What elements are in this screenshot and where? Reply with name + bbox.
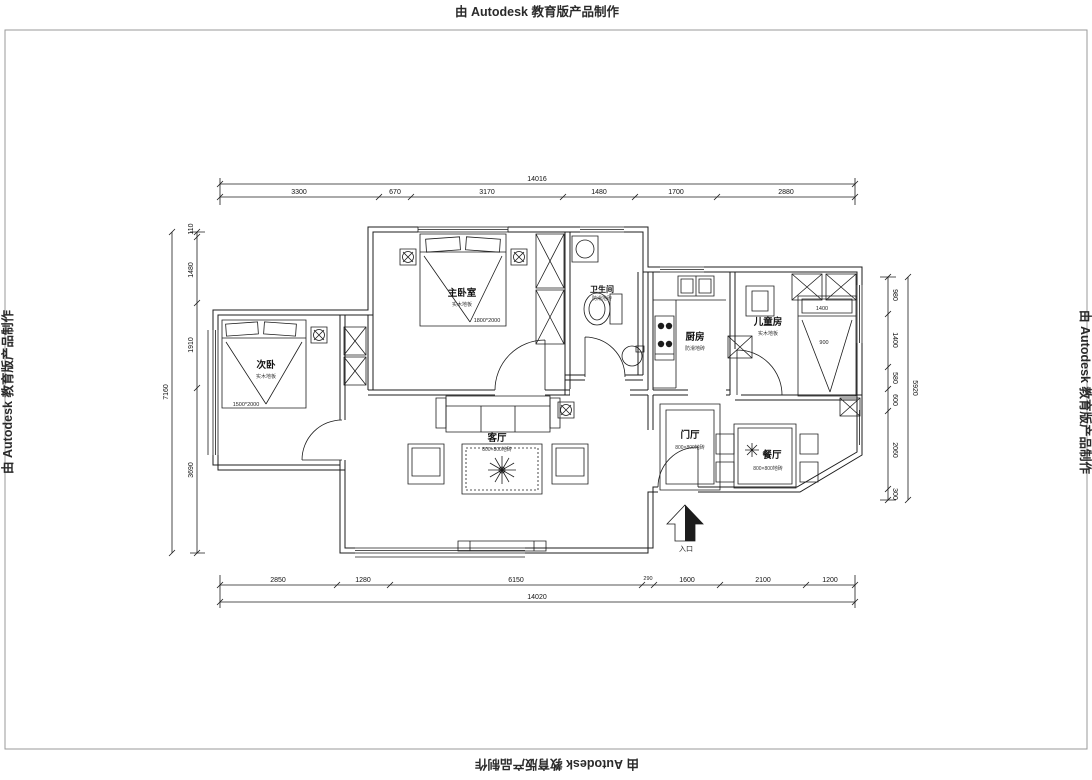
dim: 670 <box>389 189 401 196</box>
floorplan-drawing: 由 Autodesk 教育版产品制作 由 Autodesk 教育版产品制作 由 … <box>0 0 1092 780</box>
dim-left-total: 7160 <box>163 384 170 400</box>
kids-bed-depth: 900 <box>819 340 828 346</box>
second-bed-size: 1500*2000 <box>233 402 260 408</box>
door-openings <box>339 349 741 493</box>
dim-left: 110 1480 1910 3690 7160 <box>163 223 205 556</box>
dining-centerpiece <box>745 443 759 457</box>
dim: 1600 <box>679 577 695 584</box>
label-hall: 门厅 <box>680 429 700 441</box>
dim: 1400 <box>891 332 898 348</box>
dim: 1700 <box>668 189 684 196</box>
washer <box>572 236 598 262</box>
note-bathroom: 防滑地砖 <box>592 295 612 302</box>
watermark-bottom: 由 Autodesk 教育版产品制作 <box>475 757 639 772</box>
dim-top-total: 14016 <box>527 176 547 183</box>
note-hall: 800×800地砖 <box>675 444 705 451</box>
watermark-top: 由 Autodesk 教育版产品制作 <box>455 4 619 19</box>
stove <box>655 316 674 360</box>
sofa <box>436 396 560 432</box>
label-kids-room: 儿童房 <box>753 316 783 328</box>
plant-starburst <box>488 456 516 484</box>
dim-right-total: 5920 <box>911 380 918 396</box>
dim: 290 <box>643 576 652 582</box>
kids-bed-width: 1400 <box>816 306 828 312</box>
cad-floorplan-canvas: 由 Autodesk 教育版产品制作 由 Autodesk 教育版产品制作 由 … <box>0 0 1092 780</box>
note-living-room: 800×800地砖 <box>482 446 512 453</box>
dim-bottom: 2850 1280 6150 290 1600 2100 1200 14020 <box>217 575 858 608</box>
label-master-bedroom: 主卧室 <box>448 287 477 299</box>
note-kitchen: 防滑地砖 <box>685 345 705 352</box>
dim-right: 980 1400 580 600 2060 300 5920 <box>880 274 918 503</box>
note-master-bedroom: 实木地板 <box>452 301 472 308</box>
label-second-bedroom: 次卧 <box>256 359 276 371</box>
dim: 3170 <box>479 189 495 196</box>
dim: 600 <box>891 394 898 406</box>
kids-desk <box>746 286 774 316</box>
label-living-room: 客厅 <box>486 432 507 444</box>
dim: 1480 <box>188 262 195 278</box>
watermark-left: 由 Autodesk 教育版产品制作 <box>0 310 15 474</box>
watermark-right: 由 Autodesk 教育版产品制作 <box>1078 310 1092 474</box>
wardrobe-xboxes <box>344 234 860 416</box>
dim-bottom-total: 14020 <box>527 594 547 601</box>
dim: 2850 <box>270 577 286 584</box>
note-second-bedroom: 实木地板 <box>256 373 276 380</box>
label-kitchen: 厨房 <box>685 331 704 343</box>
dim: 1200 <box>822 577 838 584</box>
entrance-arrow-icon <box>667 505 703 541</box>
dim: 300 <box>891 488 898 500</box>
interior-walls <box>340 232 862 470</box>
room-labels: 主卧室 实木地板 1800*2000 次卧 实木地板 1500*2000 卫生间… <box>233 284 829 553</box>
dim: 3300 <box>291 189 307 196</box>
dim: 110 <box>188 223 195 234</box>
dim: 2060 <box>891 442 898 458</box>
dim: 6150 <box>508 577 524 584</box>
note-kids-room: 实木地板 <box>758 330 778 337</box>
basin <box>622 346 644 366</box>
dim: 980 <box>891 289 898 301</box>
master-bed-size: 1800*2000 <box>474 318 501 324</box>
dim: 2880 <box>778 189 794 196</box>
master-bed <box>420 234 506 326</box>
dim-top: 14016 3300 670 3170 1480 1700 2880 <box>217 176 858 205</box>
dim: 1910 <box>188 337 195 353</box>
dim: 580 <box>891 372 898 384</box>
dim: 2100 <box>755 577 771 584</box>
label-entry: 入口 <box>679 545 693 553</box>
label-dining: 餐厅 <box>761 449 782 461</box>
dim: 1480 <box>591 189 607 196</box>
dim: 3690 <box>188 462 195 478</box>
label-bathroom: 卫生间 <box>590 284 614 294</box>
dim: 1280 <box>355 577 371 584</box>
note-dining: 800×800地砖 <box>753 465 783 472</box>
